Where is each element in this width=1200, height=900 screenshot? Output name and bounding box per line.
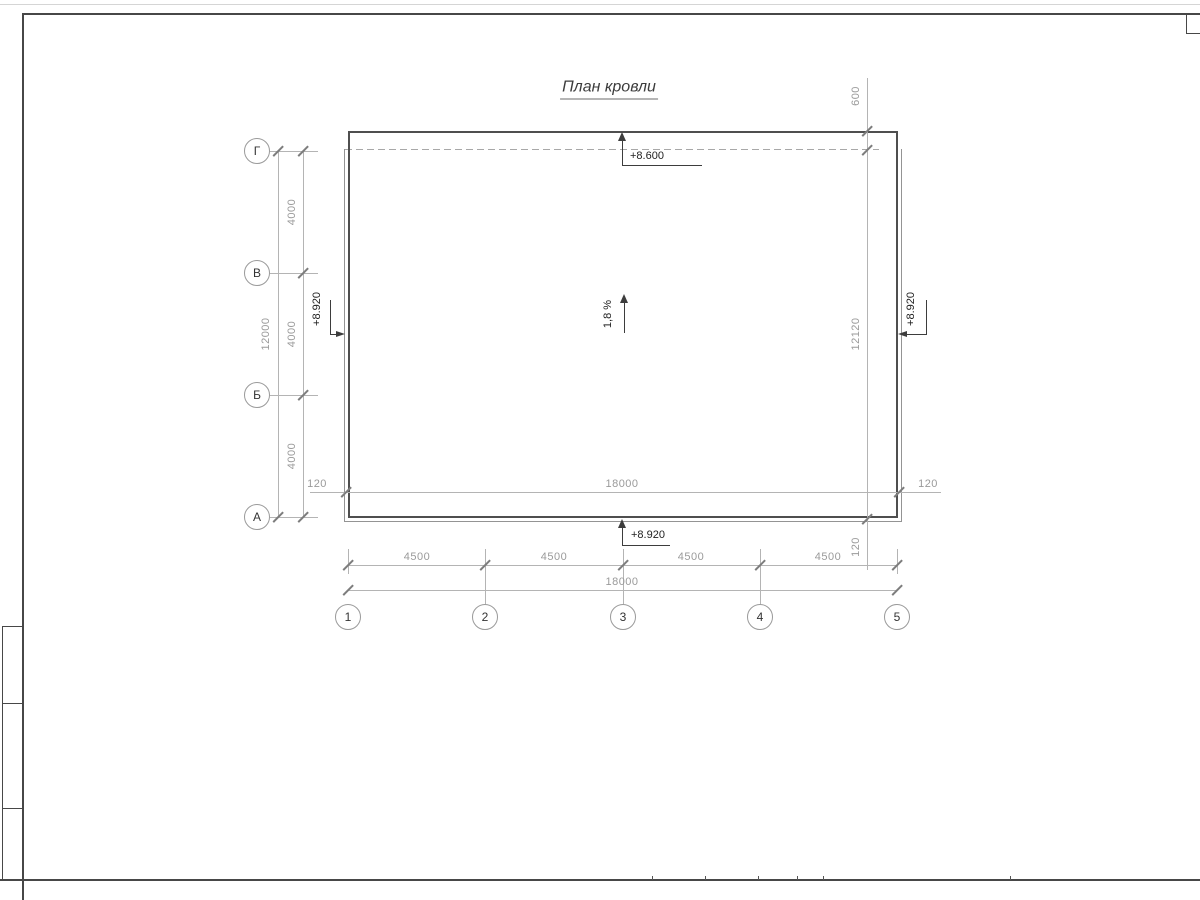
titleblock-divider (758, 876, 759, 880)
axis-marker-col: 3 (610, 604, 636, 630)
frame-corner-box-left (1186, 14, 1187, 34)
slope-label: 1,8 % (602, 300, 614, 328)
elevation-label: +8.920 (905, 292, 917, 326)
frame-left-border (22, 13, 24, 900)
frame-bottom-border (0, 879, 1200, 881)
paper-edge (0, 4, 1200, 5)
roof-outline (348, 131, 898, 518)
axis-marker-col: 5 (884, 604, 910, 630)
dim-line-bottom-total (348, 590, 897, 591)
dim-label: 4000 (286, 199, 298, 225)
titleblock-divider (797, 876, 798, 880)
axis-label: 4 (757, 610, 764, 624)
axis-label: Б (253, 388, 261, 402)
elevation-leader (622, 521, 623, 546)
side-table-row-line (2, 703, 22, 704)
axis-marker-row: Б (244, 382, 270, 408)
dim-label: 4000 (286, 321, 298, 347)
side-table-left-line (2, 626, 3, 880)
dim-label: 4500 (815, 551, 841, 563)
titleblock-divider (1010, 876, 1011, 880)
elevation-arrow-left (898, 331, 907, 337)
elevation-leader (330, 300, 331, 335)
axis-label: 1 (345, 610, 352, 624)
dim-line-right (867, 78, 868, 570)
drawing-title: План кровли (560, 79, 658, 100)
dim-label: 18000 (605, 576, 638, 588)
axis-label: 2 (482, 610, 489, 624)
axis-label: А (253, 510, 261, 524)
axis-marker-row: В (244, 260, 270, 286)
axis-label: Г (254, 144, 261, 158)
axis-marker-col: 4 (747, 604, 773, 630)
side-table-row-line (2, 626, 22, 627)
elevation-leader (926, 300, 927, 335)
elevation-label: +8.600 (630, 150, 664, 162)
titleblock-divider (705, 876, 706, 880)
axis-marker-row: Г (244, 138, 270, 164)
dim-label: 12120 (850, 317, 862, 350)
dim-label: 120 (918, 478, 938, 490)
dim-label: 600 (850, 86, 862, 106)
dim-label: 4500 (541, 551, 567, 563)
axis-marker-col: 2 (472, 604, 498, 630)
axis-label: 3 (620, 610, 627, 624)
titleblock-divider (652, 876, 653, 880)
axis-extension (760, 549, 761, 604)
elevation-label: +8.920 (631, 529, 665, 541)
side-table-row-line (2, 808, 22, 809)
elevation-label: +8.920 (311, 292, 323, 326)
dim-line-inner-total (310, 492, 941, 493)
drawing-sheet: План кровли Г В Б А 4000 4000 4000 12000… (0, 0, 1200, 900)
dim-line-left-bays (303, 151, 304, 517)
frame-top-border (22, 13, 1200, 15)
dim-label: 4000 (286, 443, 298, 469)
axis-marker-col: 1 (335, 604, 361, 630)
dim-label: 12000 (260, 317, 272, 350)
dim-label: 4500 (678, 551, 704, 563)
elevation-leader (622, 134, 623, 166)
dim-label: 4500 (404, 551, 430, 563)
dim-label: 120 (850, 537, 862, 557)
axis-label: В (253, 266, 261, 280)
slope-arrow-stem (624, 297, 625, 333)
elevation-arrow-right (336, 331, 345, 337)
frame-corner-box-bottom (1186, 33, 1200, 34)
axis-marker-row: А (244, 504, 270, 530)
dim-label: 18000 (605, 478, 638, 490)
axis-label: 5 (894, 610, 901, 624)
elevation-leader (622, 545, 670, 546)
titleblock-divider (823, 876, 824, 880)
dim-label: 120 (307, 478, 327, 490)
elevation-leader (622, 165, 702, 166)
dim-line-left-total (278, 151, 279, 517)
axis-extension (485, 549, 486, 604)
